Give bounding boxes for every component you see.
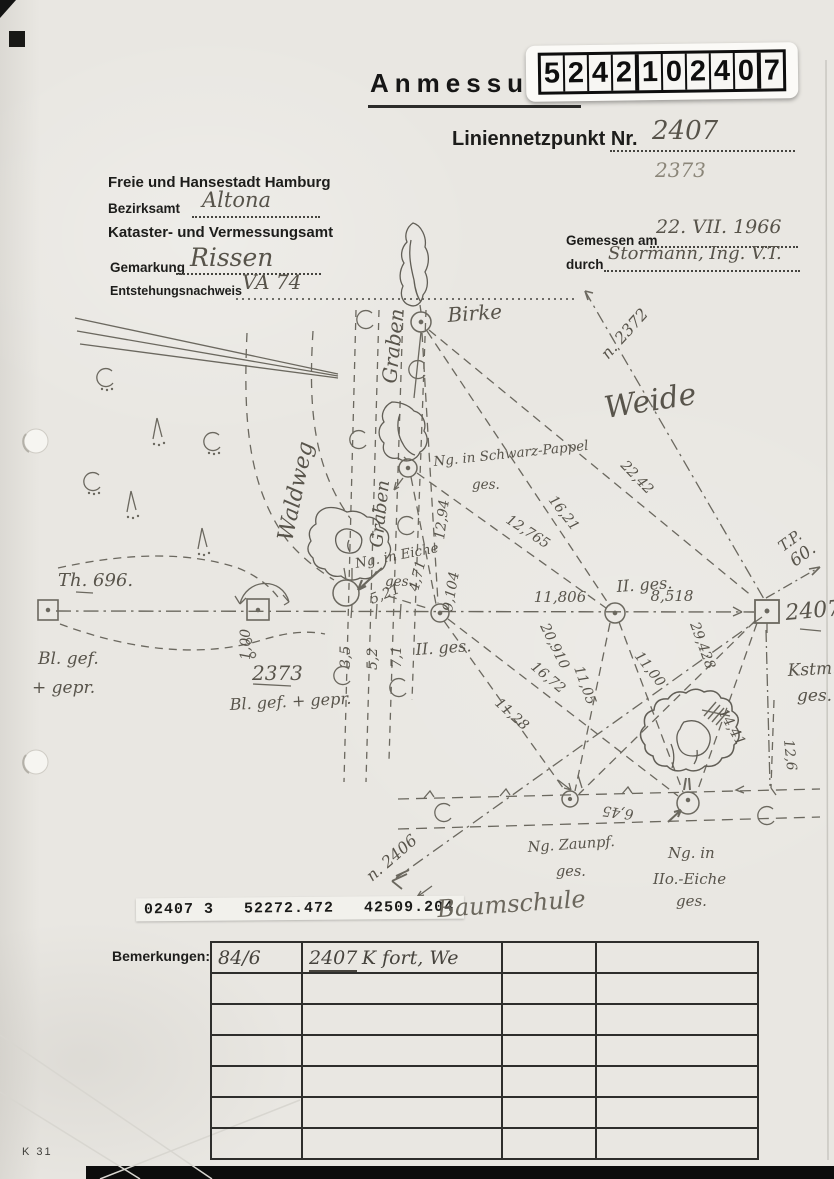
label-kstm: Kstm. [786,658,834,681]
remarks-point-number: 2407 [309,947,357,972]
label-n2406: n. 2406 [362,831,421,885]
label-zaunpfahl-ges: ges. [556,864,586,880]
measure-16-21: 16,21 [545,493,582,534]
measure-7-1: 7,1 [389,646,405,668]
measure-11-806: 11,806 [534,588,587,606]
remarks-table: 84/6 2407 K fort, We [210,941,759,1160]
tree-schwarzpappel-icon [379,402,427,461]
measure-6-45: 6,45 [602,802,635,822]
point-birke-icon [411,312,431,398]
measure-12-765: 12,765 [503,512,553,552]
sketch-lines [38,223,821,897]
label-do-eiche-2: IIo.-Eiche [652,870,726,888]
table-row [211,1035,758,1066]
label-birke: Birke [446,299,503,327]
label-th696: Th. 696. [58,570,133,591]
label-2373: 2373 [251,661,303,685]
punch-holes [23,429,48,774]
label-bl-gef-1: Bl. gef. [37,649,99,669]
point-right-icon [605,603,625,623]
point-zaunpfahl-icon [558,775,582,807]
label-schwarzpappel-ges: ges. [472,477,500,493]
table-row [211,1066,758,1097]
remarks-label: Bemerkungen: [112,948,210,964]
label-kstm-ges: ges. [797,686,832,706]
measure-5-21: 5,21 [368,581,403,608]
label-2407: 2407 [783,596,834,626]
measure-12-94: 12,94 [432,499,453,541]
table-row [211,1004,758,1035]
measure-22-42: 22,42 [616,457,656,498]
point-th696-icon [38,592,93,620]
label-bl-gef-gepr: Bl. gef. + gepr. [228,689,352,714]
table-row [211,973,758,1004]
label-weide: Weide [602,377,699,426]
measure-1-00: 1,00 [238,629,254,660]
label-do-eiche-3: ges. [676,892,707,910]
table-row [211,1128,758,1159]
sketch-labels: Birke Weide Waldweg Graben Graben Ng. in… [32,299,834,910]
label-graben-2: Graben [366,479,394,548]
label-bl-gef-2: + gepr. [32,678,95,698]
measure-8-518: 8,518 [651,587,694,605]
measure-11-28: 11,28 [491,695,532,734]
scanned-survey-form: Anmessung 5 2 4 2 1 0 2 4 0 7 Liniennetz… [0,0,834,1179]
table-row: 84/6 2407 K fort, We [211,942,758,973]
measure-12-6: 12,6 [780,739,799,772]
point-schwarzpappel-icon [394,459,417,490]
point-do-eiche-icon [668,792,699,822]
measure-3-5: 3,5 [338,646,354,668]
conifer-symbols [127,418,210,556]
remarks-cell-value: 84/6 [218,947,261,969]
remarks-cell-text: K fort, We [362,947,459,969]
measure-5-2: 5,2 [365,648,381,670]
label-graben: Graben [377,307,409,384]
coordinate-strip: 02407 3 52272.472 42509.204 [136,896,464,922]
label-schwarzpappel: Ng. in Schwarz-Pappel [432,438,590,470]
label-zaunpfahl: Ng. Zaunpf. [526,834,615,856]
label-do-eiche-1: Ng. in [667,844,715,862]
form-code: K 31 [22,1146,53,1158]
measure-29-428: 29,428 [686,619,718,672]
label-d-ges-center: II. ges. [414,636,472,659]
measure-11-05: 11,05 [570,664,599,707]
measure-4-71: 4,71 [406,559,429,594]
measure-9-104: 9,104 [440,570,463,612]
tree-do-eiche-icon [641,689,740,790]
table-row [211,1097,758,1128]
label-n2372: n. 2372 [597,304,652,362]
